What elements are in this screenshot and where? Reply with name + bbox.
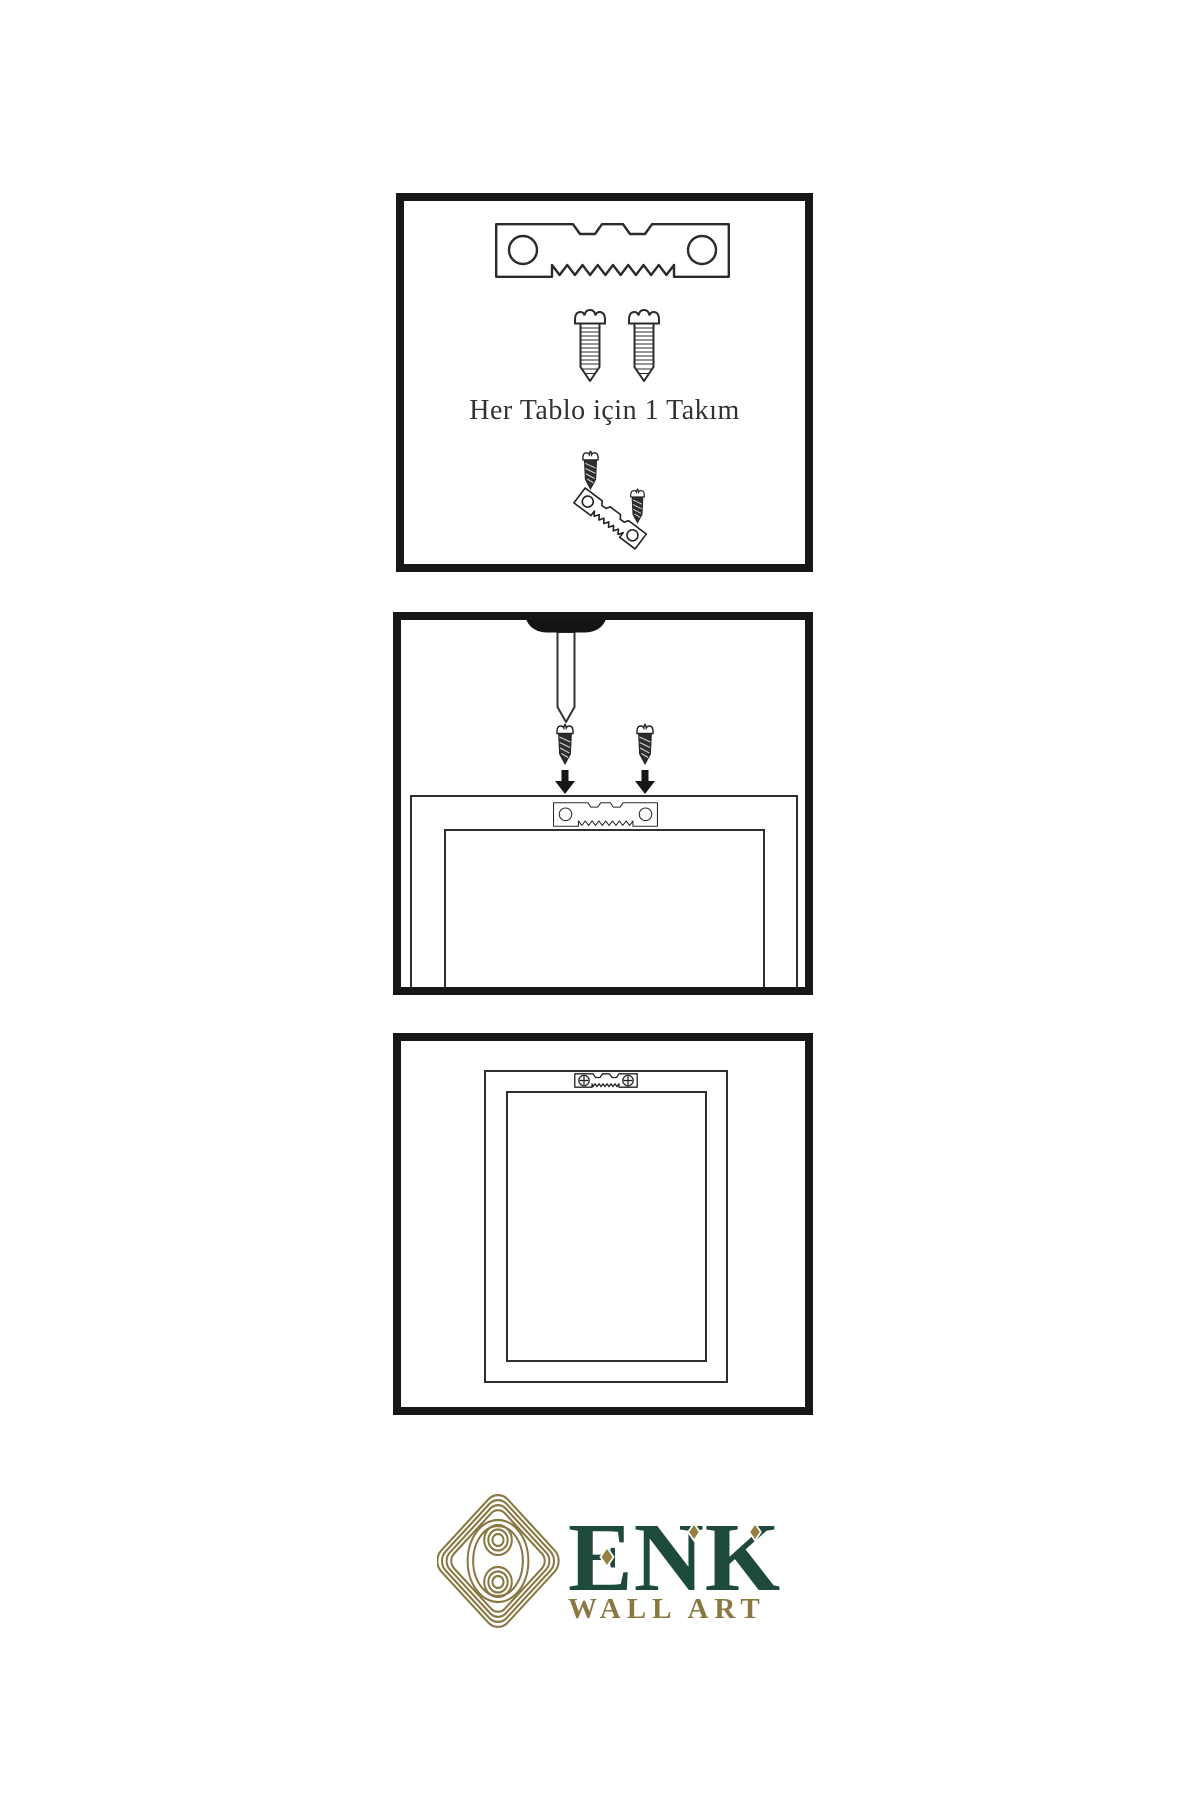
knot-emblem-icon (437, 1490, 564, 1633)
brand-subtitle: WALL ART (568, 1593, 766, 1625)
hanger-mounting-icon (572, 449, 667, 559)
nail-entry-hole (526, 619, 606, 633)
arrow-down-icon (635, 770, 655, 794)
phillips-screw-head-icon (579, 1075, 589, 1085)
instruction-sheet: Her Tablo için 1 Takım (0, 0, 1200, 1800)
mini-sawtooth-hanger-icon (574, 1073, 638, 1088)
wall-nail-icon (526, 619, 606, 725)
dark-screw-icon (631, 489, 645, 523)
arrow-down-icon (555, 770, 575, 794)
frame-back-inner (444, 829, 765, 995)
brand-logo: ENK WALL ART (437, 1490, 797, 1635)
dark-screw-icon (635, 723, 655, 765)
phillips-screw-head-icon (623, 1075, 633, 1085)
screw-icon (573, 307, 607, 383)
kit-caption: Her Tablo için 1 Takım (404, 395, 805, 427)
screw-icon (627, 307, 661, 383)
panel-wall-mounting (393, 612, 813, 995)
sawtooth-hanger-icon (495, 223, 730, 278)
panel-hardware-kit: Her Tablo için 1 Takım (396, 193, 813, 572)
sawtooth-hanger-icon (553, 802, 658, 827)
nail-shaft (558, 632, 575, 722)
dark-screw-icon (555, 723, 575, 765)
picture-frame-inner (506, 1091, 707, 1362)
panel-hung-frame (393, 1033, 813, 1415)
dark-screw-icon (583, 451, 598, 489)
